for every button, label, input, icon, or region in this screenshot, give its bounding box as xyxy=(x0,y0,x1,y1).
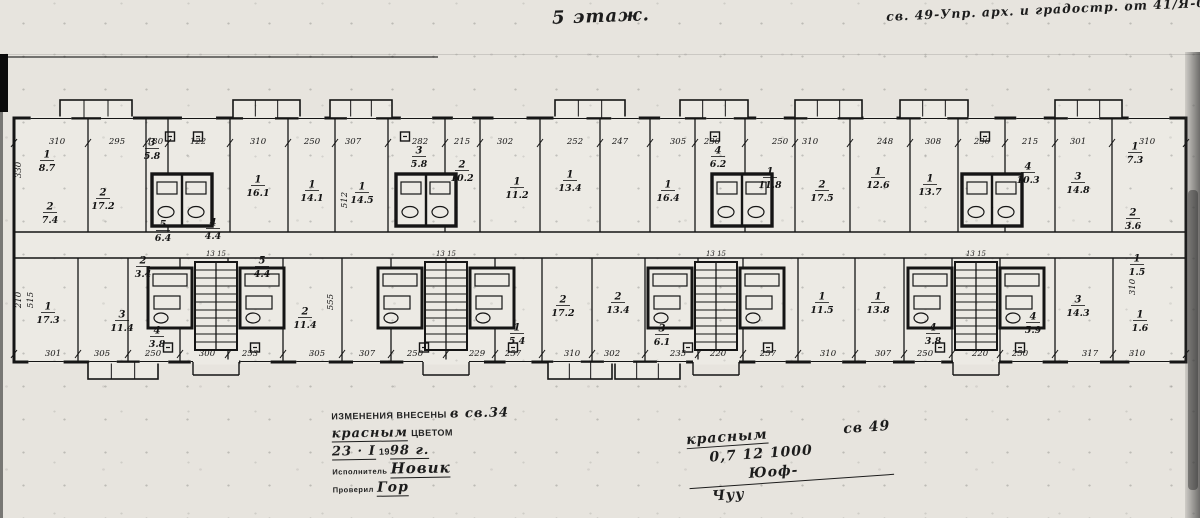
room-area: 3.8 xyxy=(925,336,942,347)
room-area: 13.4 xyxy=(558,183,581,194)
dim-text: 215 xyxy=(1021,137,1038,147)
dim-text: 305 xyxy=(670,137,686,147)
room-number: 1 xyxy=(875,167,882,178)
room-number: 1 xyxy=(927,174,934,185)
room-number: 1 xyxy=(1132,142,1139,153)
room-number: 1 xyxy=(514,177,521,188)
room-area: 6.2 xyxy=(710,159,727,170)
room-number: 1 xyxy=(1137,310,1144,321)
room-area: 16.4 xyxy=(656,193,679,204)
dim-text: 248 xyxy=(876,137,894,147)
room-number: 3 xyxy=(1075,172,1082,183)
room-area: 6.4 xyxy=(155,233,172,244)
room-number: 4 xyxy=(1030,312,1037,323)
dim-text: 310 xyxy=(250,137,267,147)
room-area: 11.8 xyxy=(758,180,782,191)
room-number: 3 xyxy=(149,138,156,149)
dim-text: 250 xyxy=(771,137,789,147)
room-area: 14.8 xyxy=(1066,185,1090,196)
room-number: 1 xyxy=(1134,254,1141,265)
hand-album-ref: в св.34 xyxy=(450,405,509,421)
room-area: 13.8 xyxy=(866,305,890,316)
dim-text: 317 xyxy=(1082,349,1099,359)
dim-text: 307 xyxy=(875,349,892,359)
dim-text: 307 xyxy=(359,349,376,359)
dim-text: 555 xyxy=(326,294,336,310)
room-number: 3 xyxy=(659,324,666,335)
checker-signature: Гор xyxy=(377,479,409,497)
room-area: 3.4 xyxy=(135,269,152,280)
dim-text: 512 xyxy=(340,192,350,208)
dim-text: 220 xyxy=(709,349,727,359)
room-area: 17.2 xyxy=(551,308,575,319)
room-area: 10.3 xyxy=(1016,175,1040,186)
stamp-checked-label: Проверил xyxy=(333,485,374,495)
room-number: 1 xyxy=(819,292,826,303)
room-number: 1 xyxy=(255,175,262,186)
room-number: 1 xyxy=(44,150,51,161)
dim-text: 308 xyxy=(925,137,942,147)
room-number: 2 xyxy=(301,307,309,318)
dim-text: 515 xyxy=(26,292,36,308)
room-number: 4 xyxy=(210,218,217,229)
room-number: 2 xyxy=(46,202,54,213)
dim-text: 257 xyxy=(759,349,777,359)
room-area: 8.7 xyxy=(39,163,56,174)
room-number: 5 xyxy=(259,256,266,267)
dim-text: 253 xyxy=(241,349,258,359)
dim-text: 250 xyxy=(144,349,162,359)
dim-text: 235 xyxy=(669,349,686,359)
dim-text: 310 xyxy=(564,349,581,359)
room-area: 4.4 xyxy=(205,231,222,242)
dim-text: 250 xyxy=(1011,349,1029,359)
room-number: 1 xyxy=(875,292,882,303)
dim-text: 13 15 xyxy=(436,250,457,258)
room-number: 5 xyxy=(160,220,167,231)
dim-text: 310 xyxy=(802,137,819,147)
dim-text: 301 xyxy=(1070,137,1086,147)
room-area: 17.3 xyxy=(36,315,60,326)
room-number: 2 xyxy=(614,292,622,303)
dim-text: 300 xyxy=(199,349,216,359)
dim-text: 330 xyxy=(14,161,24,178)
dim-text: 13 15 xyxy=(206,250,227,258)
stamp-year-prefix: 19 xyxy=(379,447,390,457)
hand-red-word: красным xyxy=(332,425,409,442)
dim-text: 302 xyxy=(497,137,513,147)
room-number: 3 xyxy=(119,310,126,321)
dim-text: 295 xyxy=(108,137,125,147)
room-number: 1 xyxy=(665,180,672,191)
dim-text: 257 xyxy=(504,349,522,359)
floor-plan-drawing: 13 1513 1513 1513 1531029513012231025030… xyxy=(0,0,1200,518)
room-number: 1 xyxy=(45,302,52,313)
room-number: 4 xyxy=(1025,162,1032,173)
room-area: 11.4 xyxy=(110,323,133,334)
room-number: 2 xyxy=(99,188,107,199)
room-number: 1 xyxy=(567,170,574,181)
room-number: 4 xyxy=(930,323,937,334)
room-area: 14.3 xyxy=(1066,308,1090,319)
room-number: 1 xyxy=(359,182,366,193)
room-area: 5.8 xyxy=(411,159,428,170)
room-number: 2 xyxy=(139,256,147,267)
dim-text: 302 xyxy=(604,349,620,359)
dim-text: 305 xyxy=(94,349,110,359)
room-area: 5.8 xyxy=(144,151,161,162)
room-area: 7.3 xyxy=(1127,155,1144,166)
room-area: 11.2 xyxy=(505,190,529,201)
room-area: 3.6 xyxy=(1125,221,1142,232)
room-area: 10.2 xyxy=(450,173,474,184)
room-area: 14.5 xyxy=(350,195,374,206)
dim-text: 247 xyxy=(611,137,629,147)
room-number: 1 xyxy=(309,180,316,191)
dim-text: 230 xyxy=(973,137,991,147)
room-area: 3.8 xyxy=(149,339,166,350)
room-number: 1 xyxy=(767,167,774,178)
room-number: 2 xyxy=(458,160,466,171)
center-handwritten-note: красным св 49 0,7 12 1000 Юоф- Чуу xyxy=(686,417,895,508)
room-area: 6.1 xyxy=(654,337,671,348)
room-area: 5.4 xyxy=(509,336,526,347)
room-area: 5.9 xyxy=(1025,325,1042,336)
hand-date-day: 23 · I xyxy=(332,444,376,461)
dim-text: 301 xyxy=(45,349,61,359)
room-number: 2 xyxy=(1129,208,1137,219)
room-area: 11.5 xyxy=(810,305,834,316)
dim-text: 305 xyxy=(309,349,325,359)
dim-text: 250 xyxy=(406,349,424,359)
dim-text: 250 xyxy=(916,349,934,359)
room-area: 13.4 xyxy=(606,305,629,316)
room-number: 2 xyxy=(818,180,826,191)
stamp-changes-made: ИЗМЕНЕНИЯ ВНЕСЕНЫ xyxy=(331,410,447,422)
dim-text: 122 xyxy=(190,137,206,147)
room-number: 4 xyxy=(154,326,161,337)
dim-text: 13 15 xyxy=(966,250,987,258)
room-area: 1.5 xyxy=(1129,267,1146,278)
dim-text: 310 xyxy=(1139,137,1156,147)
room-area: 17.2 xyxy=(91,201,115,212)
executor-signature: Новик xyxy=(390,458,450,478)
room-number: 2 xyxy=(559,295,567,306)
dim-text: 307 xyxy=(345,137,362,147)
dim-text: 215 xyxy=(453,137,470,147)
dim-text: 252 xyxy=(566,137,583,147)
dim-text: 310 xyxy=(49,137,66,147)
room-area: 14.1 xyxy=(300,193,323,204)
revision-stamp-block: ИЗМЕНЕНИЯ ВНЕСЕНЫ в св.34 красным ЦВЕТОМ… xyxy=(331,404,510,498)
room-area: 13.7 xyxy=(918,187,942,198)
stamp-executor-label: Исполнитель xyxy=(332,467,387,477)
room-area: 12.6 xyxy=(866,180,890,191)
room-area: 11.4 xyxy=(293,320,316,331)
room-number: 3 xyxy=(416,146,423,157)
scanned-floor-plan-page: 5 этаж. св. 49-Упр. арх. и градостр. от … xyxy=(0,0,1200,518)
dim-text: 13 15 xyxy=(706,250,727,258)
room-area: 4.4 xyxy=(254,269,271,280)
dim-text: 229 xyxy=(468,349,486,359)
hand-date-year: 98 г. xyxy=(390,443,430,460)
room-number: 4 xyxy=(715,146,722,157)
stamp-color-word: ЦВЕТОМ xyxy=(411,427,453,438)
room-number: 3 xyxy=(1075,295,1082,306)
room-number: 1 xyxy=(514,323,521,334)
room-area: 16.1 xyxy=(246,188,269,199)
dim-text: 220 xyxy=(971,349,989,359)
dim-text: 310 xyxy=(1129,349,1146,359)
dim-text: 250 xyxy=(303,137,321,147)
dim-text: 310 xyxy=(820,349,837,359)
dim-text: 210 xyxy=(14,291,24,309)
room-area: 1.6 xyxy=(1132,323,1149,334)
room-area: 7.4 xyxy=(42,215,59,226)
room-area: 17.5 xyxy=(810,193,834,204)
dim-text: 310 xyxy=(1128,278,1138,295)
